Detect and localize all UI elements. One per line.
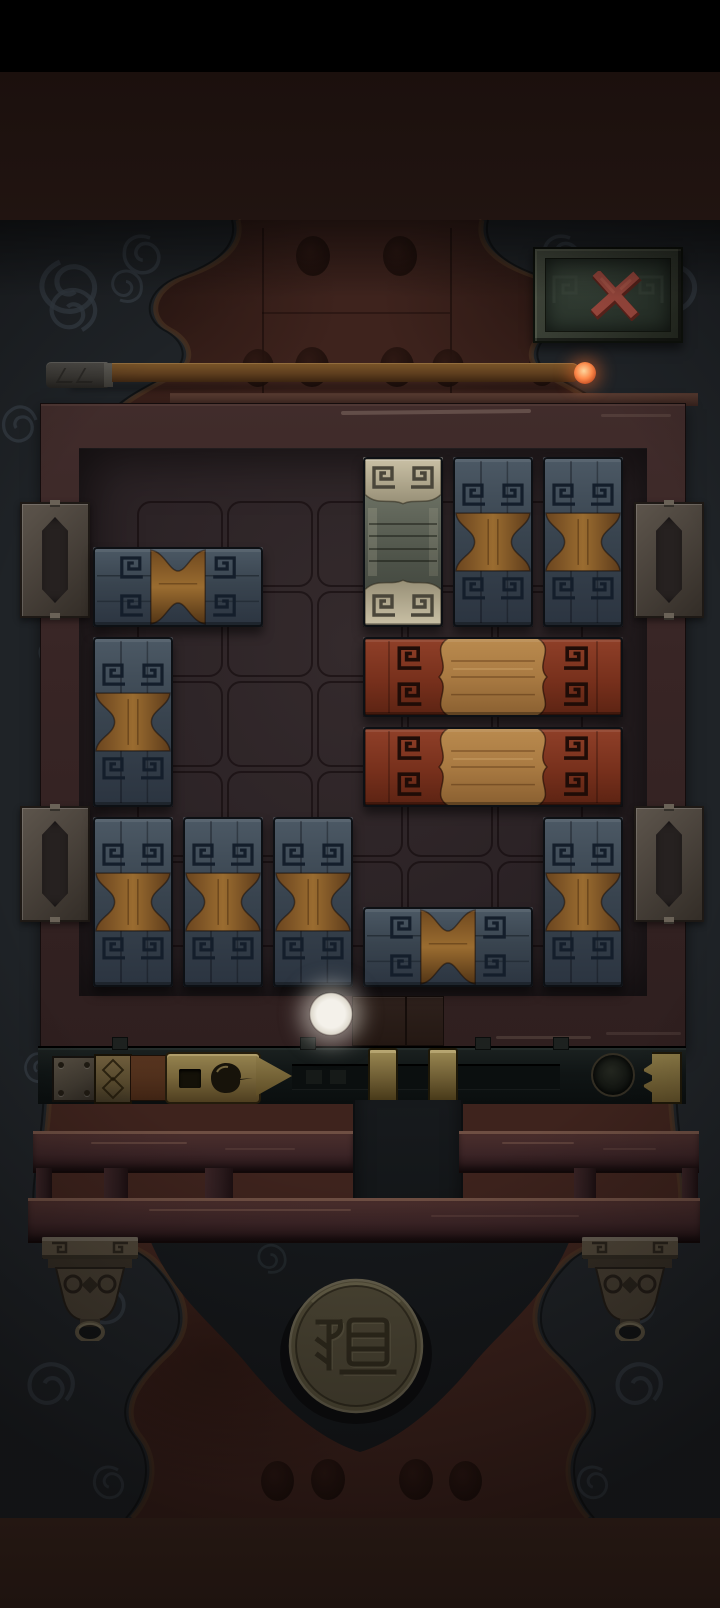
shelf-rail <box>459 1131 699 1173</box>
track-slot <box>330 1070 346 1084</box>
incense-shadow <box>70 384 575 390</box>
frame-handle <box>20 806 90 922</box>
plaque-relief <box>550 269 584 309</box>
bottom-dark-band <box>0 1518 720 1608</box>
incense-ember-icon <box>574 362 596 384</box>
handle-arch-cutout <box>38 517 72 603</box>
rail-post <box>36 1168 52 1198</box>
game-screen <box>0 0 720 1608</box>
latch-nub <box>475 1037 491 1050</box>
puzzle-piece-stone-vertical[interactable] <box>363 457 443 627</box>
latch-stop <box>428 1048 458 1104</box>
frame-handle <box>634 502 704 618</box>
latch-wood-block <box>130 1055 167 1101</box>
handle-carving <box>76 368 101 383</box>
wall-dot <box>399 1459 433 1500</box>
latch-track <box>292 1064 560 1090</box>
rail-streak <box>431 1215 579 1217</box>
frame-scratch <box>341 409 531 415</box>
exit-notch <box>406 996 444 1046</box>
latch-ring-recess <box>591 1053 635 1097</box>
frame-scratch <box>601 414 671 417</box>
puzzle-piece-blue-horizontal[interactable] <box>93 547 263 627</box>
hint-glow-dot <box>309 992 353 1036</box>
frame-scratch <box>606 1032 681 1035</box>
puzzle-piece-blue-vertical[interactable] <box>543 817 623 987</box>
rail-post <box>104 1168 128 1198</box>
latch-slider[interactable] <box>165 1052 261 1104</box>
grid-socket <box>227 681 313 767</box>
latch-carved-block <box>94 1054 132 1104</box>
incense-timer <box>0 350 720 400</box>
puzzle-piece-blue-horizontal[interactable] <box>363 907 533 987</box>
rail-streak <box>149 1209 351 1211</box>
close-button[interactable] <box>533 247 683 343</box>
shelf-rail <box>33 1131 353 1173</box>
puzzle-piece-blue-vertical[interactable] <box>93 817 173 987</box>
latch-stop <box>368 1048 398 1104</box>
handle-arch-cutout <box>652 517 686 603</box>
wall-dot <box>383 236 417 276</box>
handle-arch-cutout <box>652 821 686 907</box>
handle-arch-cutout <box>38 821 72 907</box>
rail-post <box>574 1168 596 1198</box>
puzzle-piece-blue-vertical[interactable] <box>93 637 173 807</box>
latch-nub <box>300 1037 316 1050</box>
wall-dot <box>449 1461 482 1501</box>
close-x-icon <box>590 271 642 321</box>
latch-plate <box>52 1056 96 1102</box>
slider-hole <box>179 1069 201 1088</box>
puzzle-piece-blue-vertical[interactable] <box>453 457 533 627</box>
incense-handle <box>46 362 108 388</box>
frame-handle <box>634 806 704 922</box>
frame-scratch <box>496 1036 591 1039</box>
wall-dot <box>311 1459 345 1500</box>
puzzle-piece-blue-vertical[interactable] <box>543 457 623 627</box>
rail-post <box>682 1168 698 1198</box>
latch-nub <box>553 1037 569 1050</box>
table-foot <box>582 1237 678 1341</box>
exit-notch <box>352 996 406 1046</box>
rail-streak <box>91 1142 187 1144</box>
rail-streak <box>603 1148 656 1150</box>
puzzle-piece-blue-vertical[interactable] <box>273 817 353 987</box>
rail-post <box>205 1168 233 1198</box>
slider-spade-icon <box>209 1060 255 1096</box>
puzzle-piece-red-horizontal[interactable] <box>363 727 623 807</box>
wall-dot <box>261 1461 294 1501</box>
frame-handle <box>20 502 90 618</box>
rail-streak <box>225 1148 295 1150</box>
puzzle-piece-red-horizontal[interactable] <box>363 637 623 717</box>
rail-streak <box>502 1142 574 1144</box>
puzzle-piece-blue-vertical[interactable] <box>183 817 263 987</box>
track-slot <box>306 1070 322 1084</box>
incense-stick <box>112 363 580 382</box>
table-foot <box>42 1237 138 1341</box>
latch-nub <box>112 1037 128 1050</box>
wall-dot <box>296 236 330 276</box>
